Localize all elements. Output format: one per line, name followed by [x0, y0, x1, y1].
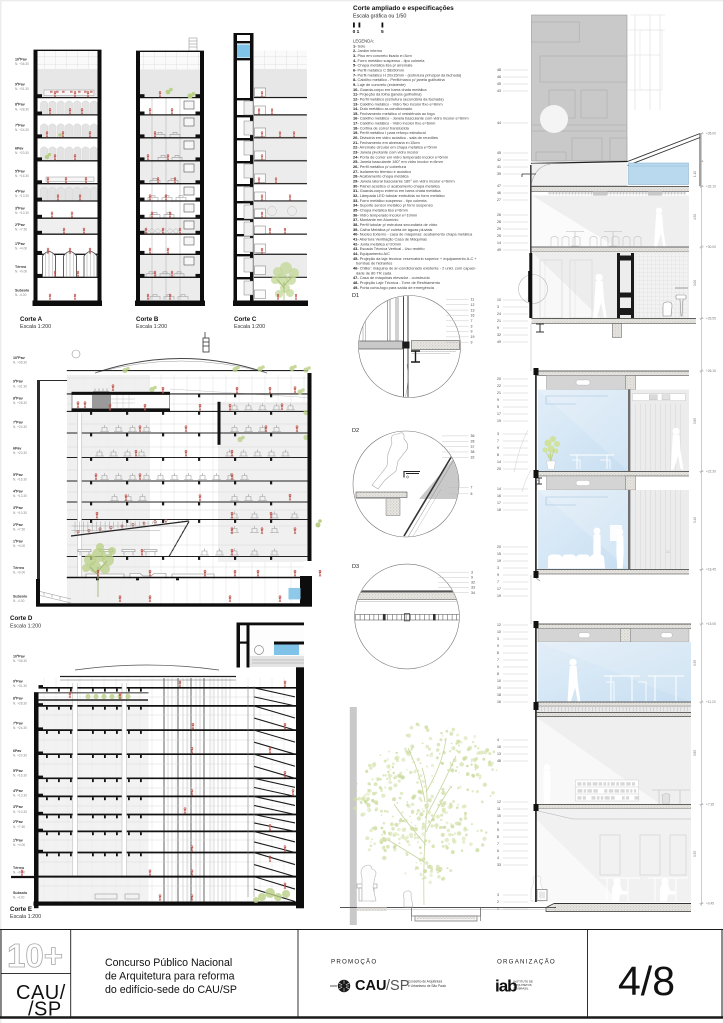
svg-text:13: 13	[471, 308, 475, 312]
svg-text:1.10: 1.10	[693, 171, 697, 177]
svg-text:13: 13	[666, 550, 670, 554]
svg-text:+15.05: +15.05	[706, 622, 716, 626]
svg-text:9ºPav: 9ºPav	[13, 380, 23, 384]
svg-text:6: 6	[497, 849, 499, 853]
svg-text:Concurso Público Nacional: Concurso Público Nacional	[105, 957, 232, 969]
svg-text:N. +16.30: N. +16.30	[13, 477, 27, 481]
svg-text:9: 9	[497, 446, 499, 450]
svg-text:42: 42	[497, 158, 501, 162]
svg-text:N. +31.30: N. +31.30	[15, 87, 29, 91]
svg-text:16: 16	[497, 700, 501, 704]
svg-text:CAU: CAU	[355, 978, 386, 994]
svg-text:15: 15	[497, 552, 501, 556]
svg-text:6Pav: 6Pav	[15, 147, 23, 151]
svg-text:Corte ampliado e especificaçõe: Corte ampliado e especificações	[353, 5, 454, 12]
svg-text:32: 32	[497, 333, 501, 337]
svg-text:5: 5	[381, 29, 384, 35]
svg-text:3ºPav: 3ºPav	[13, 506, 23, 510]
svg-text:11: 11	[471, 298, 475, 302]
svg-text:28: 28	[497, 220, 501, 224]
svg-text:N. +4.00: N. +4.00	[13, 843, 25, 847]
svg-text:N. +0.00: N. +0.00	[13, 570, 25, 574]
svg-text:N. +10.30: N. +10.30	[13, 511, 27, 515]
svg-text:10ºPav: 10ºPav	[13, 654, 25, 658]
svg-text:N. +31.30: N. +31.30	[13, 384, 27, 388]
svg-text:14: 14	[497, 460, 501, 464]
svg-text:9ºPav: 9ºPav	[13, 679, 23, 683]
svg-text:14: 14	[497, 241, 501, 245]
svg-text:Subsolo: Subsolo	[15, 289, 30, 293]
svg-text:10: 10	[497, 679, 501, 683]
svg-text:N. +4.00: N. +4.00	[15, 247, 27, 251]
svg-text:Subsolo: Subsolo	[13, 891, 28, 895]
svg-text:Térreo: Térreo	[13, 566, 25, 570]
svg-text:D2: D2	[352, 428, 359, 434]
svg-text:43: 43	[497, 89, 501, 93]
svg-text:25: 25	[497, 234, 501, 238]
svg-text:5ºPav: 5ºPav	[13, 769, 23, 773]
svg-text:32: 32	[471, 456, 475, 460]
svg-text:Corte A: Corte A	[20, 316, 43, 323]
svg-text:2ºPav: 2ºPav	[13, 523, 23, 527]
svg-text:+0.45: +0.45	[706, 902, 714, 906]
svg-text:3: 3	[497, 566, 499, 570]
svg-text:36: 36	[471, 434, 475, 438]
svg-text:7ºPav: 7ºPav	[13, 722, 23, 726]
svg-text:N. +7.50: N. +7.50	[13, 825, 25, 829]
svg-text:19: 19	[471, 335, 475, 339]
svg-text:N. +0.00: N. +0.00	[15, 270, 27, 274]
svg-text:3: 3	[471, 324, 473, 328]
svg-text:N. -4.00: N. -4.00	[15, 293, 27, 297]
svg-text:Escala 1:200: Escala 1:200	[10, 914, 41, 920]
svg-text:6: 6	[471, 492, 473, 496]
svg-text:17: 17	[497, 501, 501, 505]
svg-text:Térreo: Térreo	[15, 265, 27, 269]
svg-text:33: 33	[471, 586, 475, 590]
svg-text:10: 10	[497, 630, 501, 634]
svg-text:PROMOÇÃO: PROMOÇÃO	[331, 959, 377, 966]
svg-text:4ºPav: 4ºPav	[13, 490, 23, 494]
svg-text:3: 3	[497, 305, 499, 309]
svg-text:N. +20.30: N. +20.30	[13, 451, 27, 455]
svg-text:3.35: 3.35	[693, 660, 697, 666]
svg-text:9: 9	[497, 326, 499, 330]
svg-text:9: 9	[471, 340, 473, 344]
svg-text:4ºPav: 4ºPav	[13, 789, 23, 793]
svg-text:20: 20	[497, 467, 501, 471]
svg-text:Subsolo: Subsolo	[13, 594, 28, 598]
svg-text:2ºPav: 2ºPav	[15, 223, 25, 227]
svg-text:N. -4.00: N. -4.00	[13, 896, 25, 900]
svg-text:46: 46	[497, 191, 501, 195]
svg-text:46: 46	[497, 75, 501, 79]
svg-text:3.35: 3.35	[693, 851, 697, 857]
svg-text:5: 5	[497, 405, 499, 409]
svg-text:3: 3	[497, 893, 499, 897]
svg-text:16: 16	[471, 314, 475, 318]
svg-text:3.85: 3.85	[693, 750, 697, 756]
svg-text:10: 10	[497, 298, 501, 302]
svg-text:49- Porta corta-fogo para saíd: 49- Porta corta-fogo para saída de emerg…	[353, 285, 435, 290]
svg-text:3: 3	[497, 432, 499, 436]
svg-text:7: 7	[471, 486, 473, 490]
svg-text:N. +31.30: N. +31.30	[13, 684, 27, 688]
svg-text:19: 19	[497, 419, 501, 423]
svg-text:/SP: /SP	[28, 999, 62, 1021]
svg-text:8: 8	[497, 651, 499, 655]
svg-text:2: 2	[497, 900, 499, 904]
svg-text:24: 24	[497, 312, 501, 316]
svg-text:+18.45: +18.45	[706, 568, 716, 572]
svg-text:N. +7.50: N. +7.50	[15, 228, 27, 232]
svg-text:Corte C: Corte C	[234, 316, 257, 323]
svg-text:13: 13	[497, 752, 501, 756]
svg-text:38: 38	[471, 450, 475, 454]
svg-text:N. +4.00: N. +4.00	[13, 544, 25, 548]
svg-text:D3: D3	[352, 564, 359, 570]
svg-text:10ºPav: 10ºPav	[15, 58, 27, 62]
svg-text:11: 11	[497, 807, 501, 811]
svg-text:+7.35: +7.35	[706, 803, 714, 807]
svg-text:+32.10: +32.10	[706, 185, 716, 189]
svg-text:N. +13.30: N. +13.30	[13, 793, 27, 797]
svg-text:7: 7	[471, 319, 473, 323]
svg-text:6Pav: 6Pav	[13, 749, 21, 753]
svg-text:26: 26	[497, 213, 501, 217]
svg-text:N. +24.30: N. +24.30	[15, 128, 29, 132]
svg-text:4ºPav: 4ºPav	[15, 190, 25, 194]
svg-text:12: 12	[471, 303, 475, 307]
svg-text:Escala 1:200: Escala 1:200	[136, 324, 167, 330]
svg-text:Escala gráfica ou 1/50: Escala gráfica ou 1/50	[353, 14, 406, 20]
svg-text:3ºPav: 3ºPav	[15, 207, 25, 211]
svg-text:9: 9	[471, 576, 473, 580]
svg-text:+26.15: +26.15	[706, 369, 716, 373]
svg-text:2ºPav: 2ºPav	[13, 820, 23, 824]
svg-text:D1: D1	[352, 293, 359, 299]
svg-text:4/8: 4/8	[618, 958, 675, 1004]
svg-text:17: 17	[497, 412, 501, 416]
svg-text:N. +24.30: N. +24.30	[13, 726, 27, 730]
svg-text:Corte B: Corte B	[136, 316, 159, 323]
svg-text:21: 21	[497, 391, 501, 395]
svg-text:16: 16	[497, 494, 501, 498]
svg-text:3: 3	[471, 570, 473, 574]
svg-text:16: 16	[497, 745, 501, 749]
svg-text:Escala 1:200: Escala 1:200	[20, 324, 51, 330]
svg-text:8ºPav: 8ºPav	[13, 697, 23, 701]
svg-text:ORGANIZAÇÃO: ORGANIZAÇÃO	[497, 959, 556, 966]
svg-text:N. +24.30: N. +24.30	[13, 425, 27, 429]
svg-text:9: 9	[471, 330, 473, 334]
svg-text:19: 19	[497, 559, 501, 563]
svg-text:41: 41	[497, 165, 501, 169]
svg-text:39: 39	[497, 172, 501, 176]
svg-text:10: 10	[497, 814, 501, 818]
svg-text:/SP: /SP	[386, 978, 409, 994]
svg-text:1ºPav: 1ºPav	[15, 242, 25, 246]
svg-text:7: 7	[497, 580, 499, 584]
svg-text:7: 7	[497, 842, 499, 846]
svg-text:48: 48	[497, 759, 501, 763]
svg-text:1ºPav: 1ºPav	[13, 839, 23, 843]
svg-text:e Urbanismo de São Paulo: e Urbanismo de São Paulo	[408, 984, 446, 988]
svg-text:19: 19	[497, 686, 501, 690]
svg-text:20: 20	[497, 545, 501, 549]
svg-text:48: 48	[497, 68, 501, 72]
svg-text:5: 5	[497, 828, 499, 832]
svg-text:9: 9	[497, 665, 499, 669]
svg-text:17: 17	[497, 587, 501, 591]
svg-text:6Pav: 6Pav	[13, 447, 21, 451]
svg-text:N. +36.30: N. +36.30	[13, 659, 27, 663]
svg-text:45: 45	[497, 151, 501, 155]
svg-text:3: 3	[497, 637, 499, 641]
svg-text:8ºPav: 8ºPav	[13, 396, 23, 400]
svg-text:32: 32	[471, 581, 475, 585]
svg-text:45: 45	[497, 82, 501, 86]
svg-text:9ºPav: 9ºPav	[15, 83, 25, 87]
svg-text:+26.55: +26.55	[706, 317, 716, 321]
svg-text:18: 18	[497, 508, 501, 512]
svg-text:34: 34	[471, 591, 475, 595]
svg-text:N. +36.30: N. +36.30	[15, 62, 29, 66]
svg-text:37: 37	[471, 445, 475, 449]
svg-text:9: 9	[497, 573, 499, 577]
svg-text:N. +28.30: N. +28.30	[13, 401, 27, 405]
svg-text:29: 29	[497, 227, 501, 231]
svg-text:7: 7	[497, 439, 499, 443]
svg-text:44: 44	[497, 121, 501, 125]
svg-text:21: 21	[497, 319, 501, 323]
svg-text:12: 12	[497, 623, 501, 627]
svg-text:N. +10.30: N. +10.30	[13, 810, 27, 814]
svg-text:5ºPav: 5ºPav	[15, 170, 25, 174]
svg-text:9: 9	[497, 644, 499, 648]
svg-text:19: 19	[497, 594, 501, 598]
svg-text:12: 12	[497, 800, 501, 804]
svg-text:47: 47	[497, 184, 501, 188]
svg-text:N. +13.30: N. +13.30	[13, 494, 27, 498]
svg-text:N. +10.30: N. +10.30	[15, 211, 29, 215]
svg-text:0 1: 0 1	[353, 29, 360, 35]
svg-text:1ºPav: 1ºPav	[13, 540, 23, 544]
svg-text:8: 8	[497, 672, 499, 676]
svg-text:N. +13.30: N. +13.30	[15, 194, 29, 198]
svg-text:49: 49	[497, 248, 501, 252]
svg-text:N. +20.30: N. +20.30	[15, 151, 29, 155]
svg-text:3.40: 3.40	[693, 517, 697, 523]
svg-text:3.00: 3.00	[693, 280, 697, 286]
svg-text:+30.00: +30.00	[706, 245, 716, 249]
svg-text:4.50: 4.50	[693, 214, 697, 220]
svg-text:Corte D: Corte D	[10, 615, 33, 622]
svg-text:do edifício-sede do CAU/SP: do edifício-sede do CAU/SP	[105, 984, 237, 996]
svg-text:9: 9	[497, 398, 499, 402]
svg-text:+35.00: +35.00	[706, 132, 716, 136]
svg-text:Escala 1:200: Escala 1:200	[234, 324, 265, 330]
svg-text:8: 8	[497, 835, 499, 839]
svg-text:+22.30: +22.30	[706, 470, 716, 474]
svg-text:N. +0.00: N. +0.00	[13, 871, 25, 875]
svg-text:8: 8	[497, 453, 499, 457]
svg-text:DO BRASIL: DO BRASIL	[514, 987, 529, 991]
svg-text:9: 9	[497, 821, 499, 825]
svg-text:N. +16.30: N. +16.30	[15, 174, 29, 178]
svg-text:Corte E: Corte E	[10, 906, 32, 913]
svg-text:20: 20	[497, 377, 501, 381]
svg-text:3ºPav: 3ºPav	[13, 805, 23, 809]
svg-text:8ºPav: 8ºPav	[15, 103, 25, 107]
svg-text:3.85: 3.85	[693, 418, 697, 424]
svg-text:7ºPav: 7ºPav	[13, 420, 23, 424]
svg-text:Térreo: Térreo	[13, 866, 25, 870]
svg-text:N. +28.30: N. +28.30	[13, 701, 27, 705]
svg-text:14: 14	[497, 487, 501, 491]
svg-text:10ºPav: 10ºPav	[13, 356, 25, 360]
svg-text:5ºPav: 5ºPav	[13, 473, 23, 477]
svg-text:N. +16.30: N. +16.30	[13, 774, 27, 778]
svg-text:22: 22	[497, 384, 501, 388]
svg-text:4: 4	[497, 856, 499, 860]
svg-text:Escala 1:200: Escala 1:200	[10, 624, 41, 630]
svg-text:49: 49	[497, 340, 501, 344]
svg-text:+11.20: +11.20	[706, 700, 716, 704]
svg-text:7ºPav: 7ºPav	[15, 124, 25, 128]
svg-text:de Arquitetura para reforma: de Arquitetura para reforma	[105, 971, 235, 983]
svg-text:N. +20.30: N. +20.30	[13, 754, 27, 758]
svg-text:N. +7.50: N. +7.50	[13, 528, 25, 532]
svg-text:28: 28	[471, 439, 475, 443]
svg-text:N. -4.00: N. -4.00	[13, 599, 25, 603]
svg-text:18: 18	[497, 693, 501, 697]
svg-text:33: 33	[497, 863, 501, 867]
svg-text:7: 7	[497, 658, 499, 662]
svg-text:N. +28.30: N. +28.30	[15, 107, 29, 111]
svg-text:10+: 10+	[7, 937, 63, 974]
svg-text:4: 4	[497, 738, 499, 742]
svg-text:27: 27	[497, 198, 501, 202]
svg-text:N. +36.30: N. +36.30	[13, 361, 27, 365]
